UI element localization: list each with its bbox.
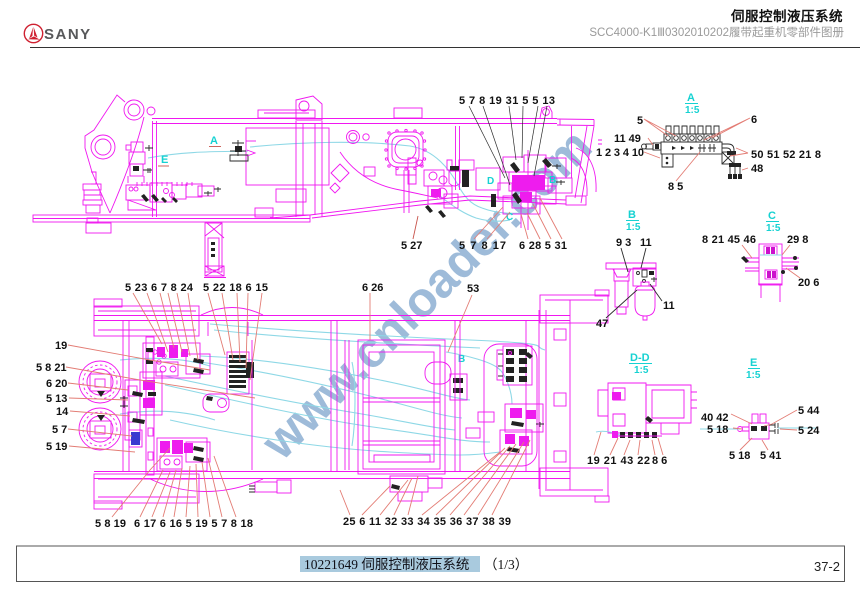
svg-text:（1/3）: （1/3） [484,557,528,572]
svg-text:10221649 伺服控制液压系统: 10221649 伺服控制液压系统 [304,557,469,572]
svg-text:37-2: 37-2 [814,559,840,574]
